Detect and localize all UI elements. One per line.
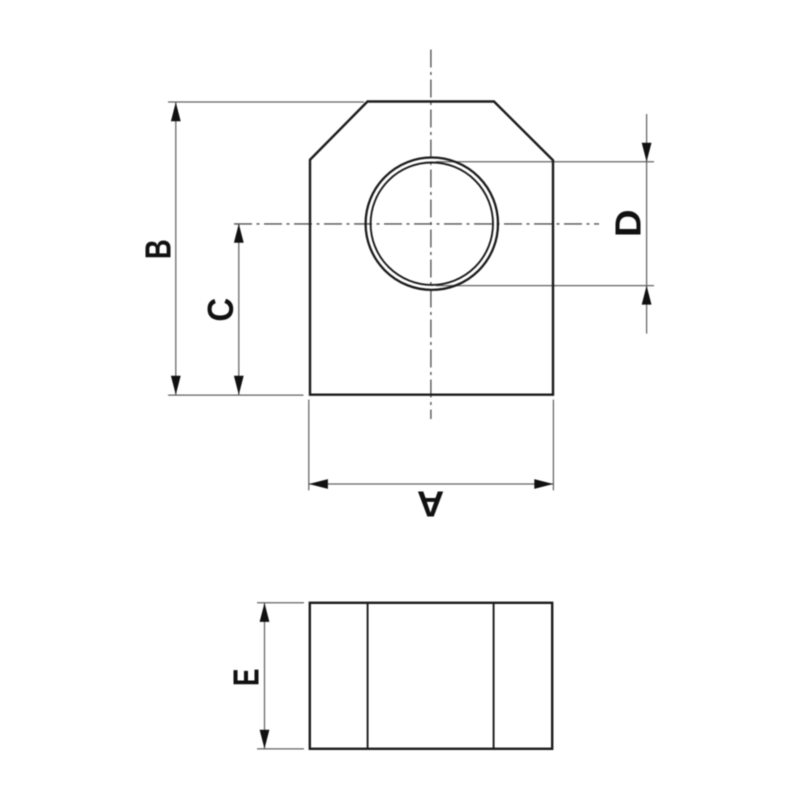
svg-text:D: D (608, 209, 649, 237)
svg-text:B: B (138, 239, 179, 259)
svg-text:E: E (225, 669, 266, 686)
svg-text:A: A (417, 484, 444, 524)
svg-text:C: C (202, 298, 242, 322)
